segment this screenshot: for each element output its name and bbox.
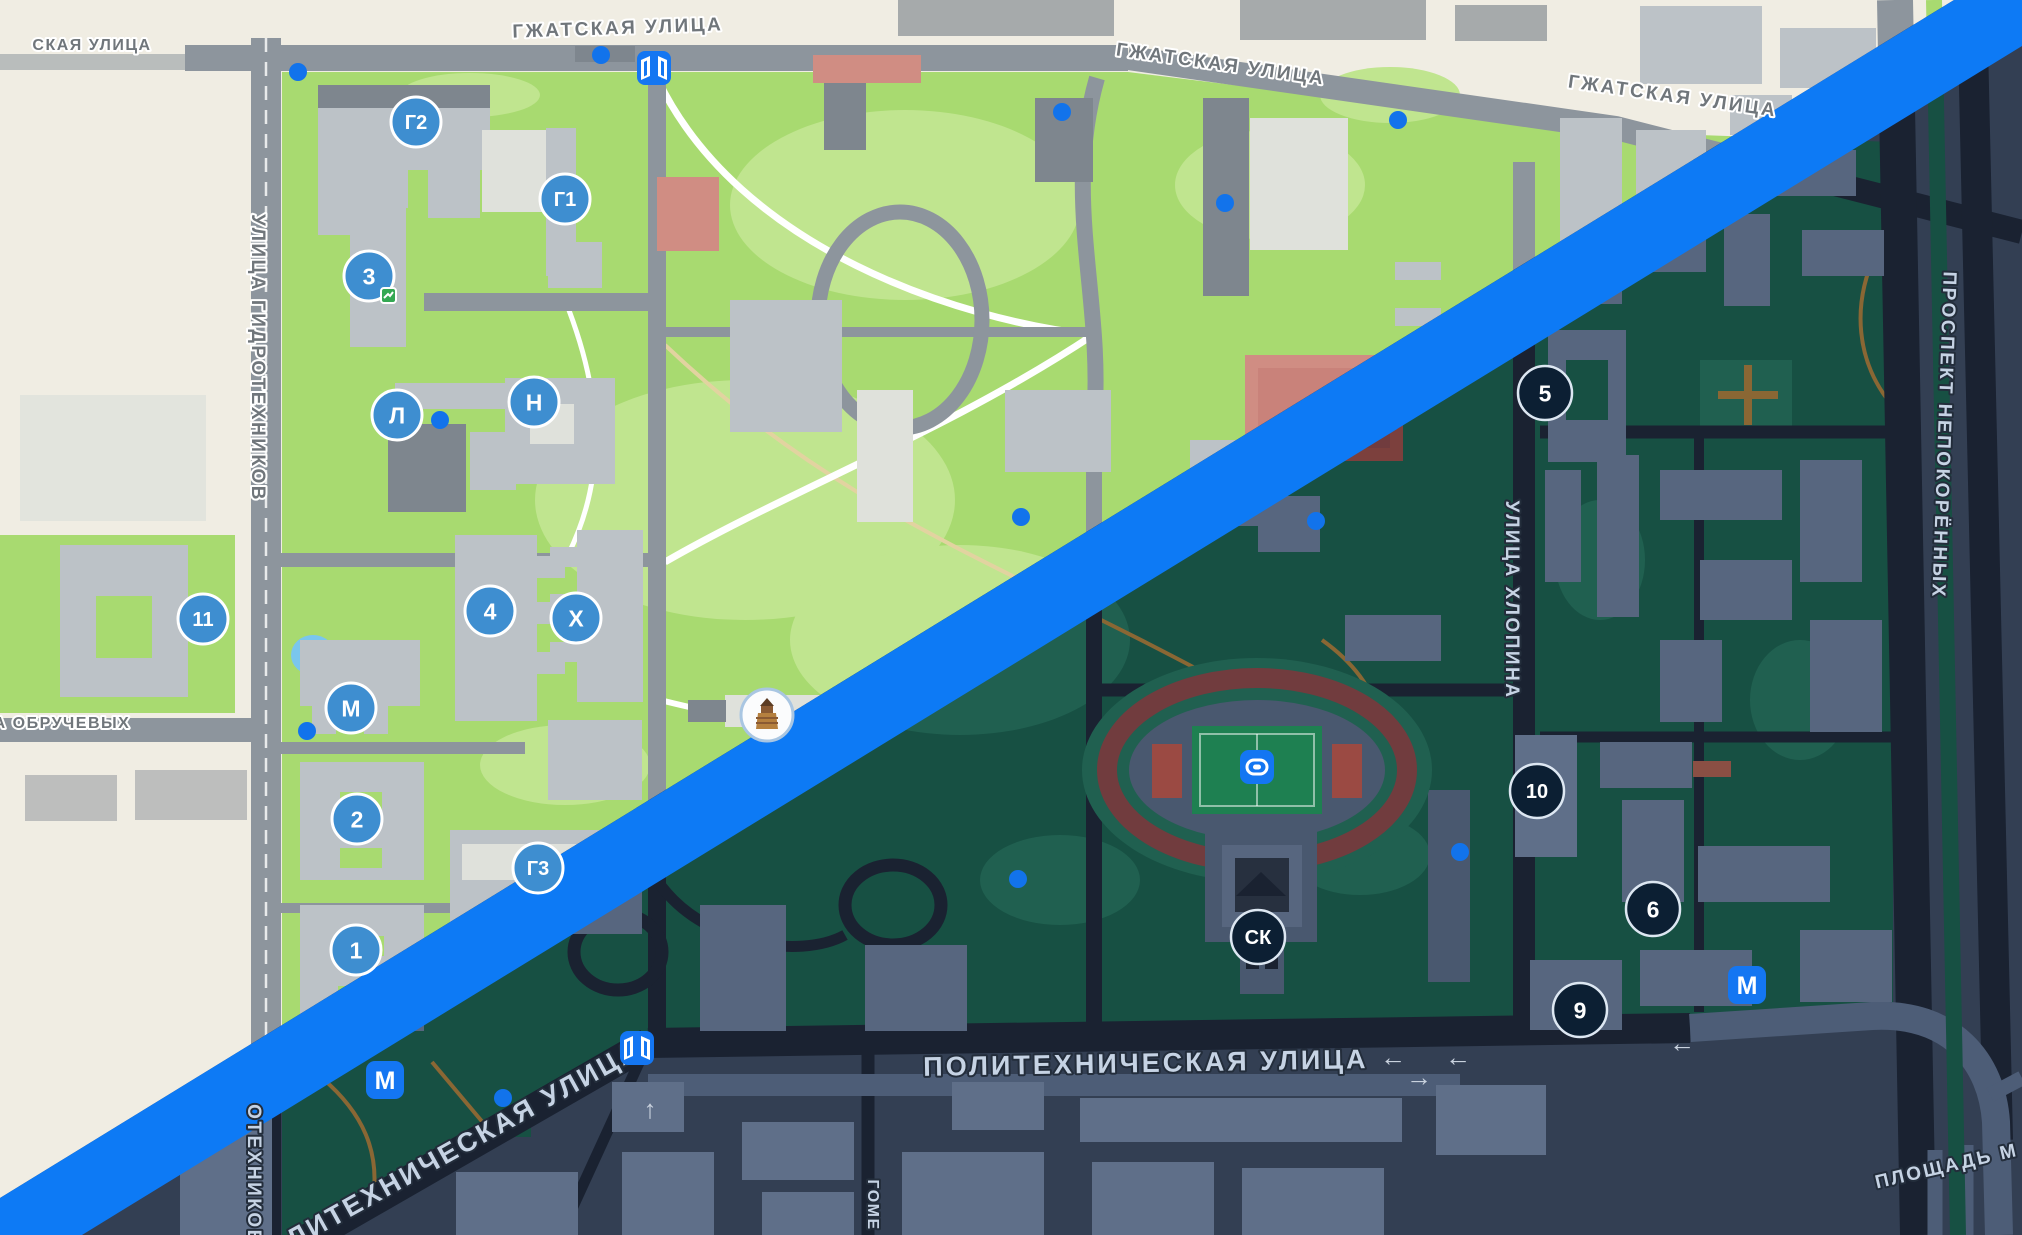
- entrance-badge-icon: [381, 288, 396, 303]
- marker-label: Н: [526, 389, 543, 415]
- traffic-arrow: ←: [1445, 1042, 1471, 1072]
- marker-label: М: [341, 695, 360, 721]
- map-canvas[interactable]: М ←→←←↑СКАЯ УЛИЦАГЖАТСКАЯ УЛИЦАГЖАТСКАЯ …: [0, 0, 2022, 1235]
- map-svg[interactable]: М ←→←←↑СКАЯ УЛИЦАГЖАТСКАЯ УЛИЦАГЖАТСКАЯ …: [0, 0, 2022, 1235]
- map-marker-М[interactable]: М: [326, 683, 376, 733]
- location-dot[interactable]: [298, 722, 316, 740]
- traffic-arrow: ←: [1380, 1042, 1406, 1072]
- gate-icon[interactable]: [637, 51, 671, 85]
- street-label: А ОБРУЧЕВЫХ: [0, 715, 130, 732]
- marker-label: СК: [1245, 927, 1272, 949]
- traffic-arrow: ↑: [644, 1094, 657, 1124]
- map-marker-11[interactable]: 11: [178, 594, 228, 644]
- marker-label: 3: [363, 263, 376, 289]
- stadium-icon[interactable]: [1240, 750, 1274, 784]
- marker-label: Г2: [405, 112, 427, 134]
- metro-icon[interactable]: [366, 1061, 404, 1099]
- marker-label: 10: [1526, 781, 1548, 803]
- map-marker-Г1[interactable]: Г1: [540, 174, 590, 224]
- marker-label: Л: [389, 402, 405, 428]
- location-dot[interactable]: [1009, 870, 1027, 888]
- street-label: ГОМЕ: [864, 1179, 881, 1230]
- location-dot[interactable]: [1216, 194, 1234, 212]
- map-marker-Г3[interactable]: Г3: [513, 843, 563, 893]
- map-marker-СК[interactable]: СК: [1231, 910, 1285, 964]
- marker-label: Г3: [527, 858, 549, 880]
- street-label: УЛИЦА ХЛОПИНА: [1501, 500, 1522, 699]
- marker-label: 5: [1539, 380, 1552, 406]
- map-marker-Н[interactable]: Н: [509, 377, 559, 427]
- marker-label: 4: [484, 598, 497, 624]
- map-marker-6[interactable]: 6: [1626, 882, 1680, 936]
- location-dot[interactable]: [1307, 512, 1325, 530]
- map-marker-3[interactable]: 3: [344, 251, 396, 303]
- street-label: ОТЕХНИКОВ: [243, 1104, 264, 1235]
- marker-label: 9: [1574, 997, 1587, 1023]
- location-dot[interactable]: [592, 46, 610, 64]
- gate-icon[interactable]: [620, 1031, 654, 1065]
- marker-label: Г1: [554, 189, 576, 211]
- map-marker-Х[interactable]: Х: [551, 593, 601, 643]
- map-marker-9[interactable]: 9: [1553, 983, 1607, 1037]
- location-dot[interactable]: [1012, 508, 1030, 526]
- location-dot[interactable]: [1451, 843, 1469, 861]
- map-marker-1[interactable]: 1: [331, 925, 381, 975]
- traffic-arrow: →: [1406, 1062, 1432, 1092]
- marker-label: 1: [350, 937, 363, 963]
- marker-label: 11: [192, 609, 213, 631]
- marker-label: 6: [1647, 896, 1660, 922]
- location-dot[interactable]: [289, 63, 307, 81]
- traffic-arrow: ←: [1669, 1028, 1695, 1058]
- marker-label: 2: [351, 806, 364, 832]
- map-marker-2[interactable]: 2: [332, 794, 382, 844]
- map-marker-Л[interactable]: Л: [372, 390, 422, 440]
- map-marker-10[interactable]: 10: [1510, 764, 1564, 818]
- street-label: СКАЯ УЛИЦА: [32, 37, 151, 54]
- map-marker-4[interactable]: 4: [465, 586, 515, 636]
- location-dot[interactable]: [431, 411, 449, 429]
- metro-icon[interactable]: [1728, 966, 1766, 1004]
- location-dot[interactable]: [1053, 103, 1071, 121]
- map-marker-5[interactable]: 5: [1518, 366, 1572, 420]
- map-marker-Г2[interactable]: Г2: [391, 97, 441, 147]
- monument-icon[interactable]: [741, 689, 793, 741]
- location-dot[interactable]: [1389, 111, 1407, 129]
- street-label: УЛИЦА ГИДРОТЕХНИКОВ: [247, 214, 268, 502]
- marker-label: Х: [568, 605, 584, 631]
